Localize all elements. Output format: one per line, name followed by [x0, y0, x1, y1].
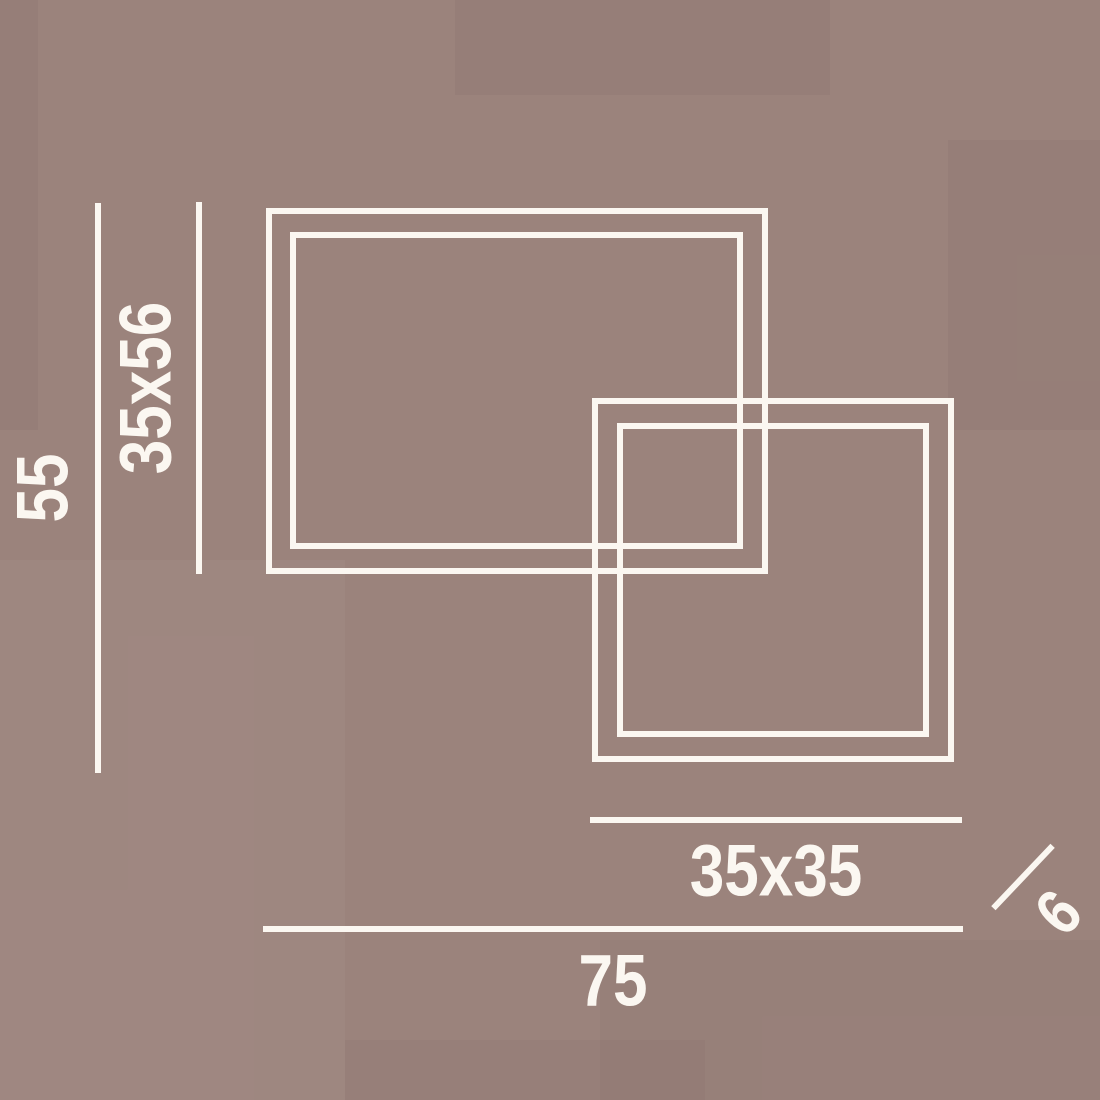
diagram-canvas: 55 35x56 35x35 75 6: [0, 0, 1100, 1100]
large-frame-dimension-line: [196, 202, 202, 574]
small-frame-size-label: 35x35: [690, 835, 863, 908]
small-frame-inner-outline: [617, 423, 929, 737]
background-shade-patch: [948, 140, 1100, 430]
total-height-label: 55: [7, 453, 80, 522]
background-shade-patch: [345, 1040, 705, 1100]
large-frame-size-label: 35x56: [110, 302, 183, 475]
small-frame-dimension-line: [590, 817, 962, 823]
total-height-dimension-line: [95, 203, 101, 773]
background-shade-patch: [0, 560, 345, 1100]
background-shade-patch: [600, 940, 1100, 1100]
total-width-dimension-line: [263, 926, 963, 932]
background-shade-patch: [455, 0, 830, 95]
total-width-label: 75: [578, 945, 647, 1018]
depth-label: 6: [1023, 878, 1093, 945]
background-shade-patch: [0, 0, 38, 430]
